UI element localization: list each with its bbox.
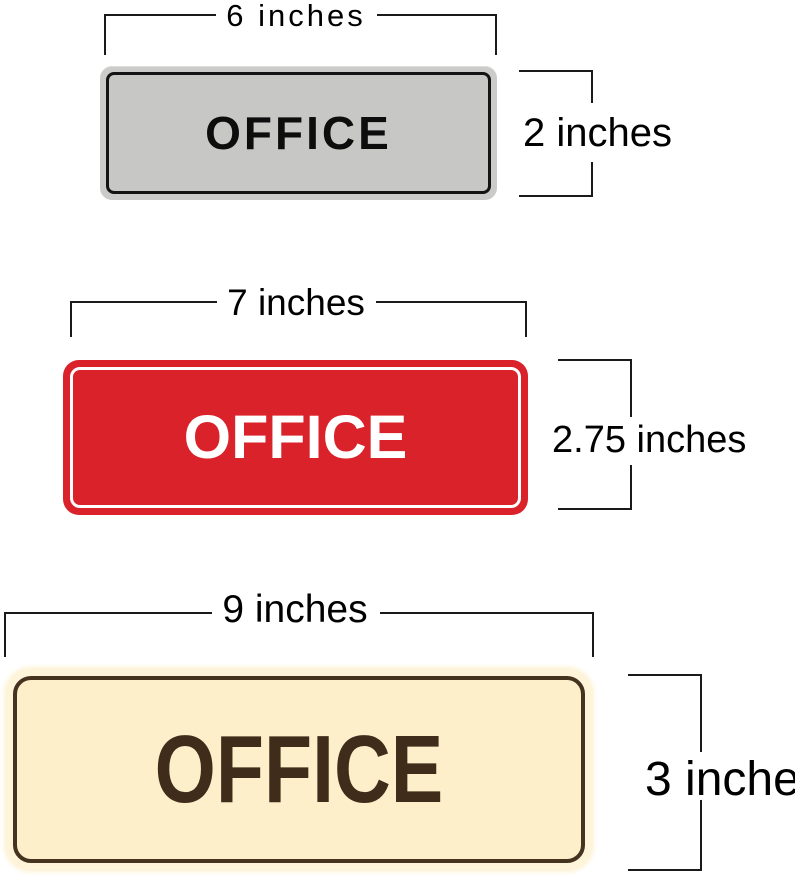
dim-tick [558, 508, 632, 510]
dim-line [630, 465, 632, 510]
width-dimension-label: 7 inches [227, 284, 365, 321]
office-sign-gray-face: OFFICE [106, 72, 491, 194]
office-sign-cream-face: OFFICE [13, 676, 585, 863]
office-sign-gray: OFFICE [100, 66, 497, 200]
office-sign-cream-text: OFFICE [155, 722, 444, 818]
dim-line [104, 14, 216, 16]
dim-line [380, 612, 594, 614]
dim-line [630, 359, 632, 417]
dim-line [700, 674, 702, 752]
office-sign-red-text: OFFICE [184, 407, 408, 468]
dim-line [376, 301, 527, 303]
dim-line [591, 162, 593, 197]
dim-line [70, 301, 217, 303]
office-sign-red: OFFICE [63, 360, 528, 515]
dim-tick [519, 195, 593, 197]
dim-tick [495, 14, 497, 55]
dim-tick [525, 301, 527, 337]
office-sign-gray-text: OFFICE [205, 110, 392, 156]
height-dimension-label: 2 inches [523, 113, 672, 153]
dim-line [4, 612, 212, 614]
office-sign-size-diagram: 6 inches OFFICE 2 inches 7 inches [0, 0, 795, 876]
dim-tick [4, 612, 6, 657]
office-sign-red-face: OFFICE [70, 367, 521, 508]
dim-tick [519, 70, 593, 72]
dim-tick [104, 14, 106, 55]
office-sign-cream: OFFICE [5, 668, 593, 871]
dim-tick [628, 674, 702, 676]
dim-line [377, 14, 497, 16]
dim-line [700, 800, 702, 871]
dim-tick [592, 612, 594, 657]
width-dimension-label: 9 inches [222, 590, 367, 629]
dim-line [591, 70, 593, 103]
width-dimension-label: 6 inches [226, 0, 365, 31]
height-dimension-label: 3 inches [645, 756, 795, 804]
dim-tick [628, 869, 702, 871]
dim-tick [70, 301, 72, 337]
height-dimension-label: 2.75 inches [552, 421, 746, 459]
dim-tick [558, 359, 632, 361]
